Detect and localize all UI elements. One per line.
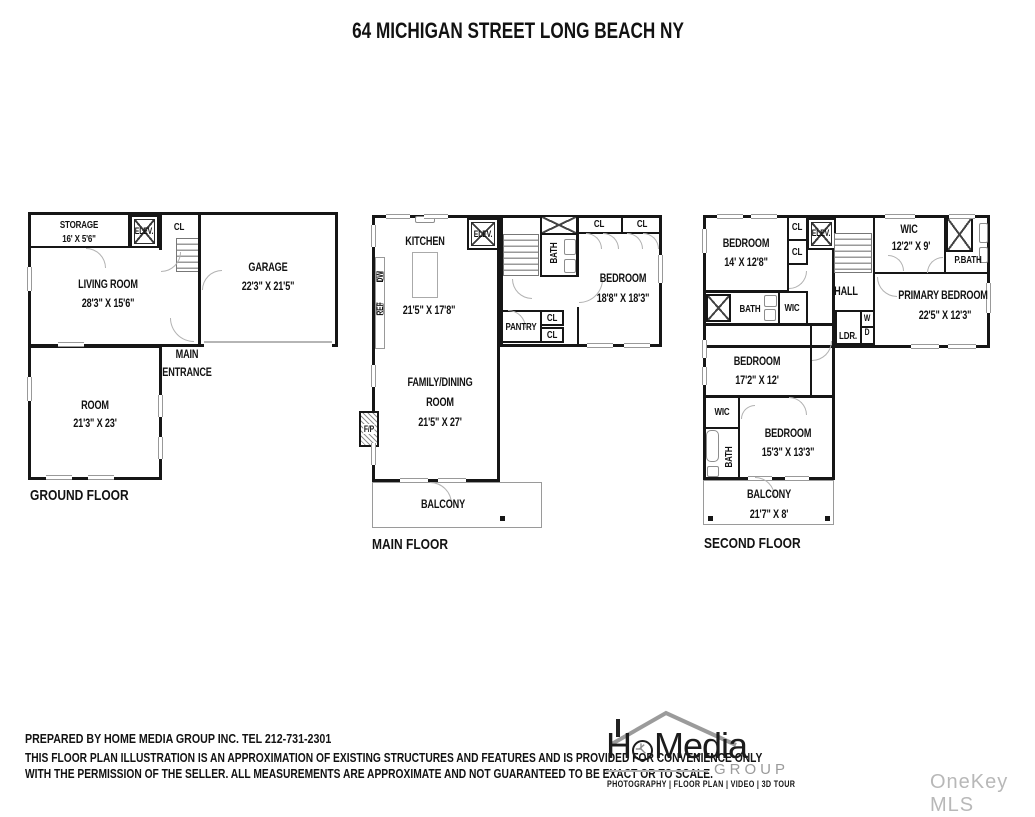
window-mark: [88, 475, 114, 480]
staircase: [503, 234, 539, 276]
window-mark: [400, 478, 428, 483]
floor-plan-page: { "title": "64 MICHIGAN STREET LONG BEAC…: [0, 0, 1035, 800]
sink: [764, 295, 777, 307]
window-mark: [717, 214, 743, 219]
wall-garage: [198, 212, 201, 347]
balcony-label: BALCONY: [747, 487, 791, 501]
closet-label: CL: [547, 312, 557, 324]
sink: [564, 259, 576, 273]
logo-services: PHOTOGRAPHY | FLOOR PLAN | VIDEO | 3D TO…: [607, 779, 795, 789]
wall-bedroom2: [810, 325, 812, 397]
home-media-group-logo: HMedia GROUP PHOTOGRAPHY | FLOOR PLAN | …: [606, 706, 791, 790]
bedroom2-dims: 17'2" X 12': [735, 373, 779, 387]
closet-label: CL: [792, 246, 802, 258]
window-mark: [751, 214, 777, 219]
refrigerator-label: REF: [375, 302, 385, 315]
bedroom-label: BEDROOM: [600, 271, 647, 285]
hall-label: HALL: [834, 284, 858, 298]
brand-wordmark: HMedia: [606, 727, 747, 765]
storage-dims: 16' X 5'6": [62, 233, 96, 245]
main-floor-title: MAIN FLOOR: [372, 536, 448, 553]
window-mark: [438, 478, 466, 483]
brand-rest: Media: [654, 727, 747, 765]
closet-label: CL: [637, 218, 647, 230]
dryer-label: D: [865, 327, 870, 337]
logo-divider: [606, 770, 708, 772]
bedroom2-label: BEDROOM: [734, 354, 781, 368]
wall: [873, 215, 875, 273]
ground-floor-plan: STORAGE 16' X 5'6" ELEV. CL LIVING ROOM …: [28, 212, 338, 480]
living-room-label: LIVING ROOM: [78, 277, 138, 291]
window-mark: [785, 476, 809, 481]
balcony-post: [825, 516, 830, 521]
washer-label: W: [864, 313, 870, 323]
window-mark: [158, 395, 163, 417]
window-mark: [702, 229, 707, 253]
closet-label: CL: [594, 218, 604, 230]
toilet: [764, 309, 776, 321]
window-mark: [948, 344, 976, 349]
living-room-dims: 28'3" X 15'6": [82, 296, 135, 310]
wall: [806, 292, 808, 324]
closet-label: CL: [792, 221, 802, 233]
second-floor-title: SECOND FLOOR: [704, 535, 801, 552]
elevator-label: ELEV.: [135, 226, 153, 236]
wic-label: WIC: [714, 406, 729, 418]
wall: [778, 292, 780, 324]
window-mark: [46, 475, 72, 480]
window-mark: [371, 365, 376, 387]
camera-shutter-icon: [632, 740, 653, 761]
primary-bedroom-label: PRIMARY BEDROOM: [898, 288, 987, 302]
window-mark: [587, 343, 613, 348]
family-room-label: FAMILY/DINING: [407, 375, 472, 389]
room-dims: 21'3" X 23': [73, 416, 117, 430]
page-title: 64 MICHIGAN STREET LONG BEACH NY: [352, 18, 684, 44]
shower: [540, 215, 578, 235]
bath-label: BATH: [740, 303, 761, 315]
main-entrance-label2: ENTRANCE: [162, 365, 211, 379]
window-mark: [424, 214, 448, 219]
bedroom1-label: BEDROOM: [723, 236, 770, 250]
second-floor-plan: BEDROOM 14' X 12'8" CL CL ELEV. WIC 12'2…: [703, 215, 990, 525]
brand-h: H: [606, 727, 631, 765]
window-mark: [949, 214, 975, 219]
closet-label: CL: [547, 329, 557, 341]
primary-bedroom-dims: 22'5" X 12'3": [919, 308, 972, 322]
wall: [28, 345, 162, 480]
bedroom1-dims: 14' X 12'8": [724, 255, 768, 269]
storage-label: STORAGE: [60, 219, 98, 231]
balcony-post: [708, 516, 713, 521]
footer-prepared-by: PREPARED BY HOME MEDIA GROUP INC. TEL 21…: [25, 731, 331, 746]
shower: [946, 217, 973, 252]
main-floor-plan: KITCHEN 21'5" X 17'8" ELEV. BATH DW REF …: [372, 215, 664, 530]
wall: [621, 215, 623, 233]
onekey-mls-watermark: OneKey MLS: [930, 771, 1035, 817]
wic-label: WIC: [784, 302, 799, 314]
laundry-label: LDR.: [839, 330, 857, 342]
tub: [979, 223, 988, 243]
window-mark: [885, 214, 915, 219]
balcony-post: [500, 516, 505, 521]
wall-bedroom1: [703, 215, 789, 292]
window-mark: [658, 255, 663, 283]
dishwasher-label: DW: [375, 271, 385, 282]
window-mark: [624, 343, 650, 348]
family-room-dims: 21'5" X 27': [418, 415, 462, 429]
window-mark: [371, 225, 376, 247]
toilet: [564, 239, 576, 255]
elevator-label: ELEV.: [812, 228, 830, 238]
window-mark: [58, 342, 84, 347]
window-mark: [702, 340, 707, 358]
fireplace-label: F/P: [363, 424, 375, 434]
wic-dims: 12'2" X 9': [892, 239, 931, 253]
garage-door: [204, 341, 332, 347]
staircase: [834, 233, 872, 273]
kitchen-dims: 21'5" X 17'8": [403, 303, 456, 317]
wic-label: WIC: [900, 222, 917, 236]
window-mark: [386, 214, 410, 219]
wall: [159, 212, 162, 250]
bathtub: [706, 430, 719, 462]
kitchen-label: KITCHEN: [405, 234, 444, 248]
room-label: ROOM: [81, 398, 109, 412]
wall: [787, 239, 808, 241]
window-mark: [911, 344, 939, 349]
bath-label: BATH: [548, 243, 560, 264]
wall: [703, 323, 835, 326]
wall: [577, 215, 579, 277]
bedroom-dims: 18'8" X 18'3": [597, 291, 650, 305]
garage-label: GARAGE: [248, 260, 287, 274]
main-entrance-label: MAIN: [176, 347, 199, 361]
elevator-label: ELEV.: [474, 229, 492, 239]
window-mark: [27, 267, 32, 291]
window-mark: [158, 437, 163, 459]
primary-bath-label: P.BATH: [954, 254, 981, 266]
kitchen-island: [412, 252, 438, 298]
logo-group-label: GROUP: [714, 761, 789, 778]
bath-label: BATH: [723, 447, 735, 468]
shower: [706, 294, 731, 322]
wall: [577, 307, 579, 347]
ground-floor-title: GROUND FLOOR: [30, 487, 129, 504]
toilet: [707, 466, 719, 477]
bedroom3-dims: 15'3" X 13'3": [762, 445, 815, 459]
window-mark: [702, 367, 707, 385]
wall: [705, 291, 808, 293]
balcony-dims: 21'7" X 8': [750, 507, 789, 521]
family-room-label2: ROOM: [426, 395, 454, 409]
garage-dims: 22'3" X 21'5": [242, 279, 295, 293]
bedroom3-label: BEDROOM: [765, 426, 812, 440]
balcony-label: BALCONY: [421, 497, 465, 511]
pantry-label: PANTRY: [505, 321, 536, 333]
window-mark: [27, 377, 32, 401]
window-mark: [371, 443, 376, 465]
closet-label: CL: [174, 221, 184, 233]
